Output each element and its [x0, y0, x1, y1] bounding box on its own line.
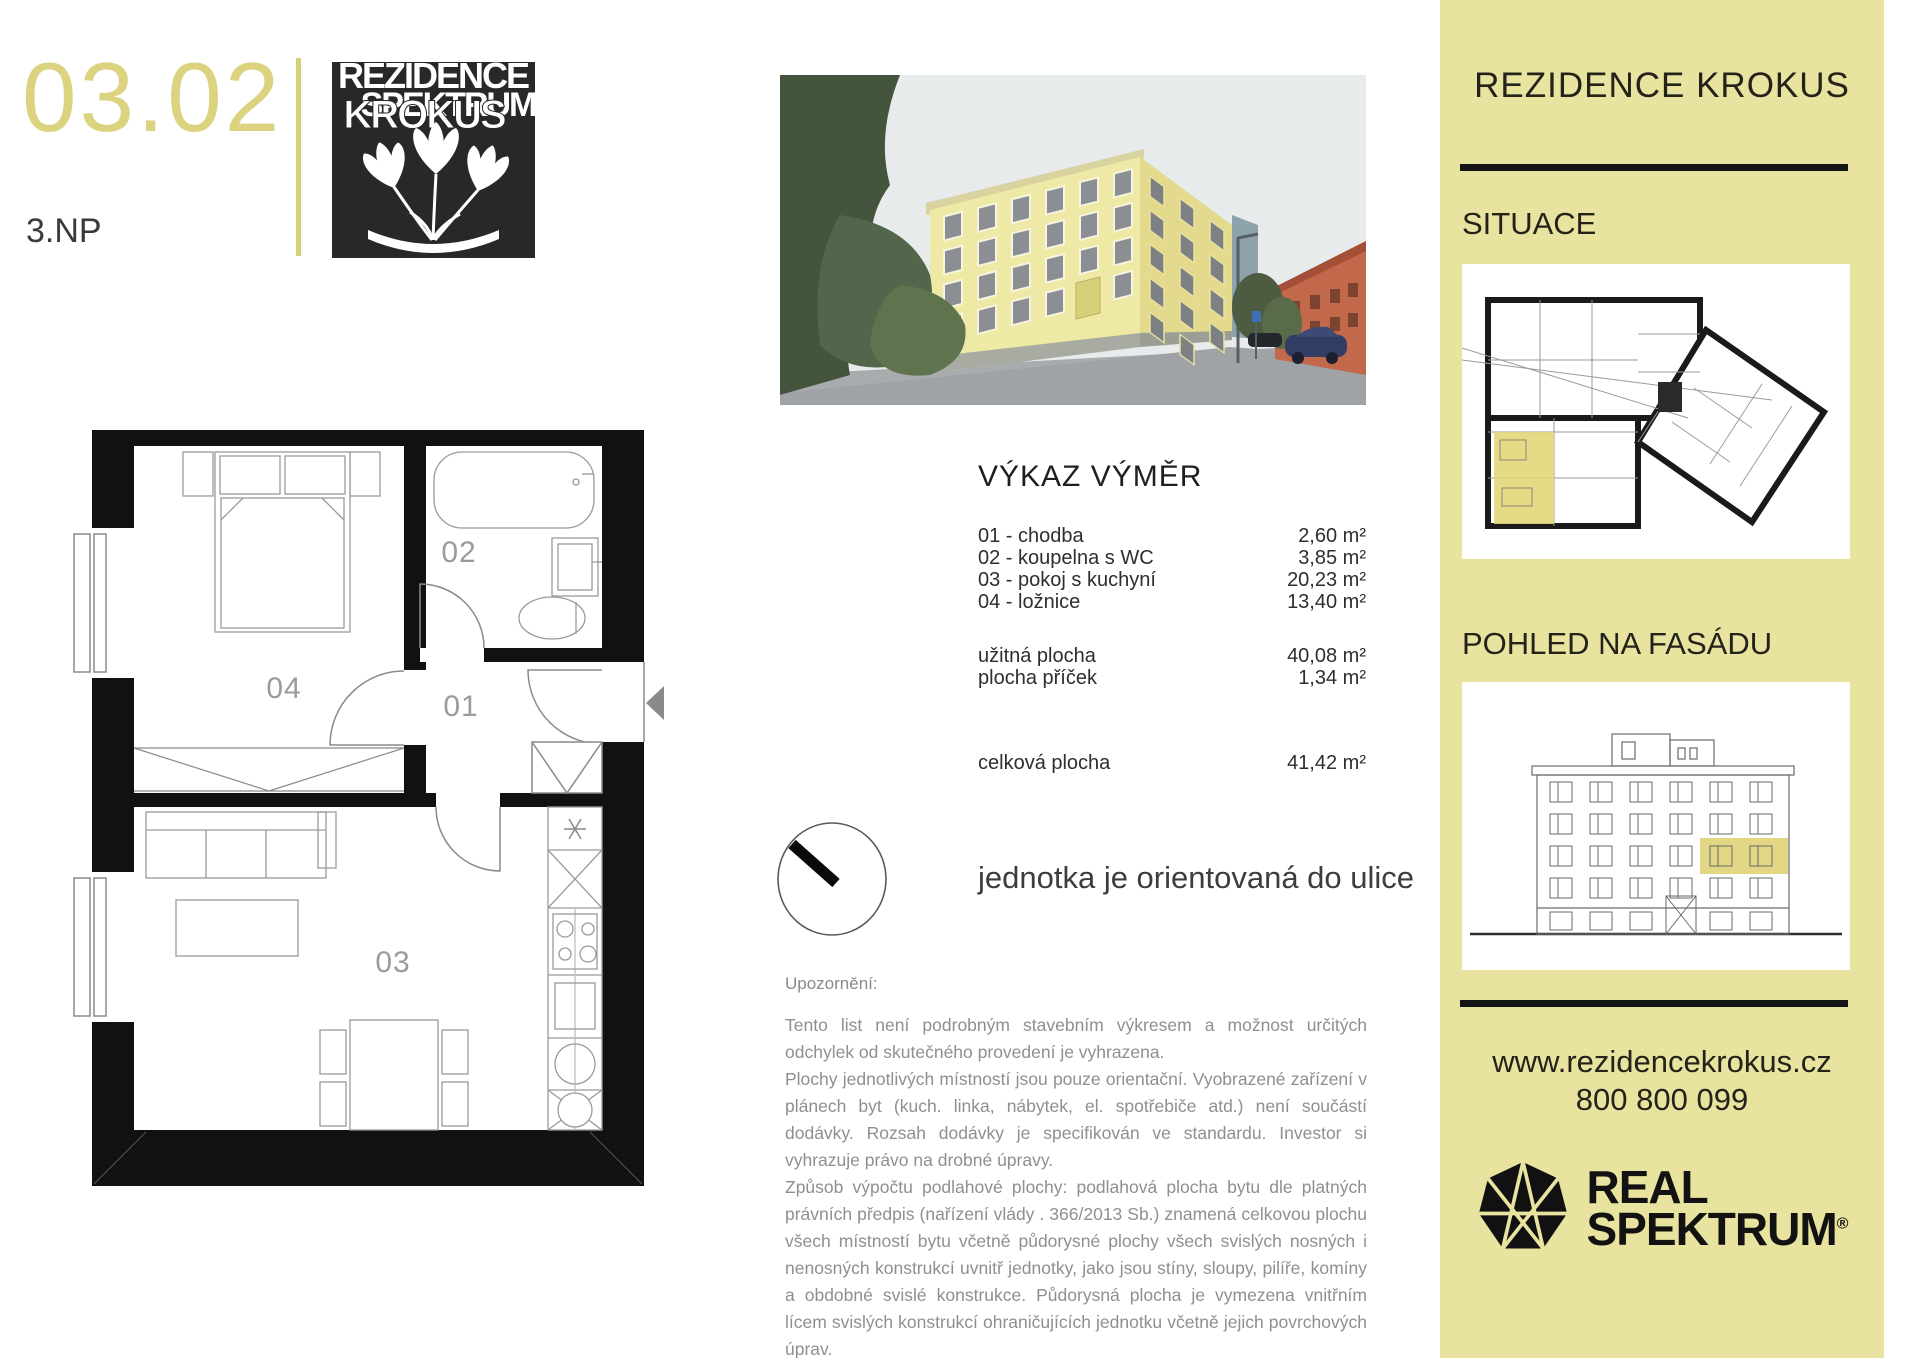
- entrance-arrow-icon: [646, 686, 664, 720]
- brand-line2: SPEKTRUM®: [1587, 1208, 1848, 1250]
- bathtub-icon: [434, 452, 594, 528]
- table-row: 03 - pokoj s kuchyní 20,23 m²: [978, 569, 1366, 591]
- unit-number: 03.02: [22, 48, 282, 146]
- situace-plan: [1462, 264, 1850, 559]
- sidebar: REZIDENCE KROKUS SITUACE: [1440, 0, 1884, 1358]
- total-value: 41,42 m²: [1287, 752, 1366, 774]
- disclaimer-paragraph: Způsob výpočtu podlahové plochy: podlaho…: [785, 1174, 1367, 1358]
- room-area: 13,40 m²: [1287, 591, 1366, 613]
- disclaimer-title: Upozornění:: [785, 974, 878, 994]
- compass-icon: [776, 822, 888, 936]
- disclaimer-paragraph: Tento list není podrobným stavebním výkr…: [785, 1012, 1367, 1066]
- subtotal-value: 40,08 m²: [1287, 645, 1366, 667]
- closet-front-icon: [134, 748, 404, 791]
- room-label-04: 04: [266, 672, 301, 705]
- situace-label: SITUACE: [1462, 206, 1596, 242]
- total-label: celková plocha: [978, 752, 1110, 774]
- logo-line3: KROKUS: [343, 93, 506, 137]
- room-label: 04 - ložnice: [978, 591, 1080, 613]
- crocus-icon: REZIDENCE SPEKTRUM KROKUS: [332, 62, 535, 258]
- subtotal-value: 1,34 m²: [1298, 667, 1366, 689]
- unit-floor-plan: 01 02 03 04: [68, 430, 672, 1186]
- subtotal-label: užitná plocha: [978, 645, 1096, 667]
- room-area: 20,23 m²: [1287, 569, 1366, 591]
- room-label: 03 - pokoj s kuchyní: [978, 569, 1156, 591]
- building-photo-art: [780, 75, 1366, 405]
- room-label: 01 - chodba: [978, 525, 1084, 547]
- fasada-elevation-art: [1462, 682, 1850, 970]
- toilet-icon: [519, 597, 585, 639]
- realspektrum-gem-icon: [1477, 1158, 1569, 1258]
- situace-unit-highlight: [1494, 432, 1554, 524]
- sidebar-divider: [1460, 1000, 1848, 1007]
- table-row: 04 - ložnice 13,40 m²: [978, 591, 1366, 613]
- fasada-unit-highlight: [1700, 838, 1788, 874]
- realspektrum-wordmark: REAL SPEKTRUM®: [1587, 1166, 1848, 1251]
- website-text: www.rezidencekrokus.cz: [1440, 1044, 1884, 1080]
- table-row: užitná plocha 40,08 m²: [978, 645, 1366, 667]
- areas-title: VÝKAZ VÝMĚR: [978, 460, 1202, 494]
- wardrobe-icon: [532, 742, 602, 793]
- unit-floor: 3.NP: [26, 212, 102, 251]
- room-label-01: 01: [443, 690, 478, 723]
- sidebar-project-title: REZIDENCE KROKUS: [1440, 66, 1884, 106]
- brand-line1: REAL: [1587, 1166, 1848, 1208]
- sink-icon: [552, 538, 602, 596]
- bed-icon: [183, 452, 380, 632]
- brand-line2-text: SPEKTRUM: [1587, 1203, 1837, 1255]
- situace-plan-art: [1462, 264, 1850, 559]
- flyer-page: 03.02 3.NP REZIDENCE SPEKTRUM KROKUS: [0, 0, 1920, 1358]
- subtotal-label: plocha příček: [978, 667, 1097, 689]
- room-area: 2,60 m²: [1298, 525, 1366, 547]
- table-row: 02 - koupelna s WC 3,85 m²: [978, 547, 1366, 569]
- room-label: 02 - koupelna s WC: [978, 547, 1154, 569]
- sidebar-divider: [1460, 164, 1848, 171]
- table-row: plocha příček 1,34 m²: [978, 667, 1366, 689]
- sofa-icon: [146, 812, 336, 878]
- kitchen-counter-icon: [548, 807, 602, 1130]
- krokus-logo: REZIDENCE SPEKTRUM KROKUS: [332, 62, 535, 258]
- orientation-note: jednotka je orientovaná do ulice: [978, 860, 1414, 896]
- registered-mark: ®: [1837, 1216, 1848, 1233]
- disclaimer-text: Tento list není podrobným stavebním výkr…: [785, 1012, 1367, 1358]
- areas-subtotals: užitná plocha 40,08 m² plocha příček 1,3…: [978, 645, 1366, 689]
- room-label-02: 02: [441, 536, 476, 569]
- realspektrum-brand: REAL SPEKTRUM®: [1440, 1158, 1884, 1258]
- disclaimer-paragraph: Plochy jednotlivých místností jsou pouze…: [785, 1066, 1367, 1174]
- accent-divider: [296, 58, 301, 256]
- room-label-03: 03: [375, 946, 410, 979]
- areas-total-row: celková plocha 41,42 m²: [978, 752, 1366, 774]
- room-area: 3,85 m²: [1298, 547, 1366, 569]
- orientation-compass: [776, 822, 888, 936]
- dining-table-icon: [320, 1020, 468, 1130]
- table-row: 01 - chodba 2,60 m²: [978, 525, 1366, 547]
- fasada-elevation: [1462, 682, 1850, 970]
- coffee-table-icon: [176, 900, 298, 956]
- areas-room-list: 01 - chodba 2,60 m² 02 - koupelna s WC 3…: [978, 525, 1366, 613]
- building-photo: [780, 75, 1366, 405]
- phone-text: 800 800 099: [1440, 1082, 1884, 1118]
- fasada-label: POHLED NA FASÁDU: [1462, 626, 1772, 662]
